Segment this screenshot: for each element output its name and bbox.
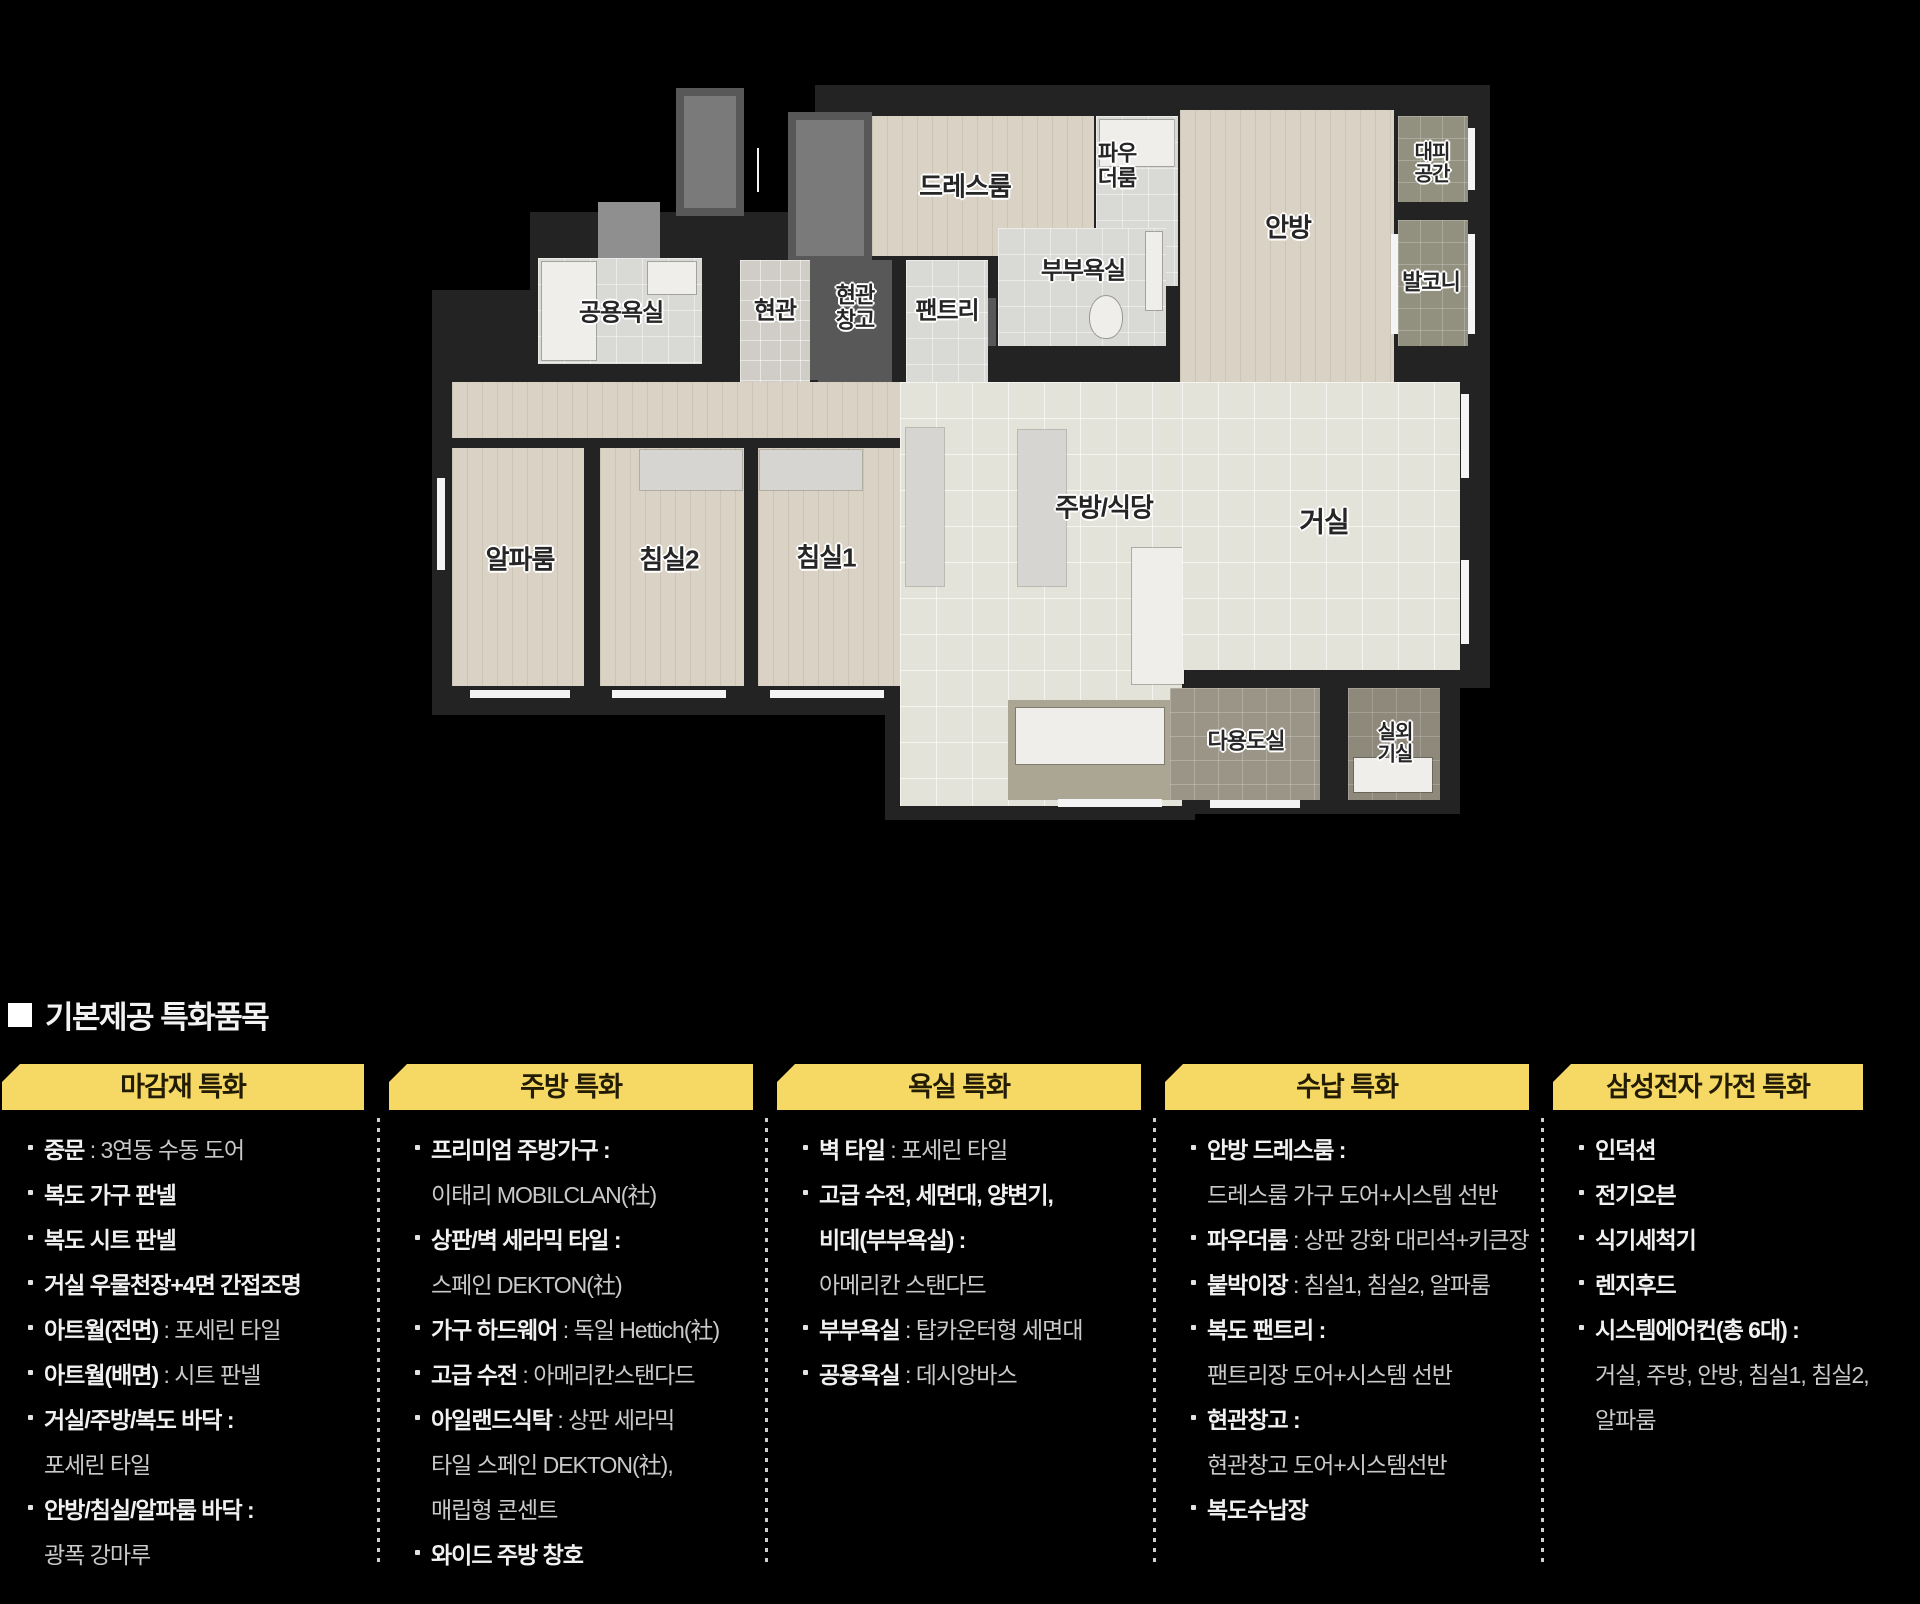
feature-label: 부부욕실 (819, 1311, 900, 1345)
feature-line-finishing-8: 안방/침실/알파룸 바닥 : (28, 1485, 254, 1530)
feature-line-bathroom-5: 공용욕실 : 데시앙바스 (803, 1350, 1017, 1395)
bullet-dot-icon (415, 1370, 420, 1375)
label-common-bath: 공용욕실 (579, 301, 663, 328)
feature-line-storage-0: 안방 드레스룸 : (1191, 1125, 1345, 1170)
feature-line-storage-7: 현관창고 도어+시스템선반 (1207, 1440, 1447, 1485)
kitchen-sink-counter (1016, 708, 1164, 764)
feature-label: 복도수납장 (1207, 1491, 1308, 1525)
feature-line-kitchen-4: 가구 하드웨어 : 독일 Hettich(社) (415, 1305, 719, 1350)
feature-line-kitchen-2: 상판/벽 세라믹 타일 : (415, 1215, 621, 1260)
feature-line-finishing-7: 포세린 타일 (44, 1440, 150, 1485)
feature-label: 비데(부부욕실) : (819, 1221, 965, 1255)
bullet-dot-icon (28, 1145, 33, 1150)
feature-label: 벽 타일 (819, 1131, 885, 1165)
label-balcony: 발코니 (1402, 271, 1460, 296)
feature-label: 아트월(전면) (44, 1311, 158, 1345)
bedroom1-closet (760, 450, 862, 490)
feature-value: 이태리 MOBILCLAN(社) (431, 1176, 656, 1210)
feature-line-kitchen-7: 타일 스페인 DEKTON(社), (431, 1440, 673, 1485)
feature-value: : 데시앙바스 (900, 1356, 1017, 1390)
bullet-dot-icon (1579, 1235, 1584, 1240)
feature-value: : 3연동 수동 도어 (84, 1131, 244, 1165)
column-divider (765, 1118, 768, 1566)
bullet-dot-icon (415, 1415, 420, 1420)
feature-label: 공용욕실 (819, 1356, 900, 1390)
core-shaft-inner (684, 96, 736, 208)
feature-line-storage-4: 복도 팬트리 : (1191, 1305, 1325, 1350)
label-kitchen-dining: 주방/식당 (1055, 493, 1153, 522)
feature-label: 인덕션 (1595, 1131, 1655, 1165)
master-bedroom-floor (1180, 110, 1394, 382)
bullet-dot-icon (1191, 1235, 1196, 1240)
feature-label: 고급 수전, 세면대, 양변기, (819, 1176, 1053, 1210)
feature-line-appliance-5: 거실, 주방, 안방, 침실1, 침실2, (1595, 1350, 1869, 1395)
feature-value: 팬트리장 도어+시스템 선반 (1207, 1356, 1452, 1390)
feature-value: 알파룸 (1595, 1401, 1655, 1435)
feature-label: 거실/주방/복도 바닥 : (44, 1401, 234, 1435)
bullet-dot-icon (803, 1370, 808, 1375)
window (770, 690, 884, 698)
feature-line-storage-2: 파우더룸 : 상판 강화 대리석+키큰장 (1191, 1215, 1529, 1260)
label-master-bath: 부부욕실 (1041, 259, 1125, 286)
column-header-storage: 수납 특화 (1165, 1064, 1529, 1110)
column-divider (377, 1118, 380, 1566)
bullet-dot-icon (1191, 1505, 1196, 1510)
bullet-dot-icon (28, 1505, 33, 1510)
feature-line-appliance-6: 알파룸 (1595, 1395, 1655, 1440)
feature-value: : 상판 세라믹 (552, 1401, 674, 1435)
feature-value: : 독일 Hettich(社) (557, 1311, 719, 1345)
title-square-bullet (8, 1003, 32, 1027)
bullet-dot-icon (415, 1550, 420, 1555)
feature-label: 전기오븐 (1595, 1176, 1676, 1210)
feature-label: 현관창고 : (1207, 1401, 1300, 1435)
kitchen-tall-unit (906, 428, 944, 586)
column-header-finishing: 마감재 특화 (2, 1064, 364, 1110)
master-bath-counter (1146, 232, 1162, 310)
feature-value: : 침실1, 침실2, 알파룸 (1288, 1266, 1490, 1300)
feature-line-appliance-2: 식기세척기 (1579, 1215, 1696, 1260)
label-alpha-room: 알파룸 (486, 545, 555, 574)
window (1468, 128, 1475, 190)
feature-line-finishing-9: 광폭 강마루 (44, 1530, 150, 1575)
entry-vestibule (598, 202, 660, 258)
window (1461, 560, 1469, 644)
feature-value: 스페인 DEKTON(社) (431, 1266, 622, 1300)
feature-label: 와이드 주방 창호 (431, 1536, 583, 1570)
feature-value: 매립형 콘센트 (431, 1491, 557, 1525)
label-bedroom1: 침실1 (796, 543, 855, 572)
bullet-dot-icon (28, 1190, 33, 1195)
feature-value: : 시트 판넬 (158, 1356, 260, 1390)
feature-label: 안방 드레스룸 : (1207, 1131, 1345, 1165)
label-pantry: 팬트리 (915, 299, 978, 326)
feature-line-finishing-6: 거실/주방/복도 바닥 : (28, 1395, 234, 1440)
window (1391, 234, 1398, 334)
toilet (1090, 296, 1122, 338)
feature-line-kitchen-8: 매립형 콘센트 (431, 1485, 557, 1530)
bullet-dot-icon (415, 1235, 420, 1240)
feature-line-storage-6: 현관창고 : (1191, 1395, 1300, 1440)
window (470, 690, 570, 698)
label-utility-room: 다용도실 (1208, 730, 1285, 755)
bullet-dot-icon (1191, 1280, 1196, 1285)
window (1468, 234, 1475, 334)
bullet-dot-icon (1191, 1145, 1196, 1150)
kitchen-island (1132, 548, 1184, 684)
feature-line-finishing-5: 아트월(배면) : 시트 판넬 (28, 1350, 260, 1395)
feature-line-bathroom-1: 고급 수전, 세면대, 양변기, (803, 1170, 1053, 1215)
feature-value: 아메리칸 스탠다드 (819, 1266, 986, 1300)
label-powder-room: 파우 더룸 (1098, 141, 1136, 190)
feature-line-finishing-3: 거실 우물천장+4면 간접조명 (28, 1260, 301, 1305)
feature-line-kitchen-6: 아일랜드식탁 : 상판 세라믹 (415, 1395, 674, 1440)
bullet-dot-icon (1579, 1325, 1584, 1330)
feature-label: 가구 하드웨어 (431, 1311, 557, 1345)
feature-line-kitchen-0: 프리미엄 주방가구 : (415, 1125, 610, 1170)
label-entrance: 현관 (754, 299, 796, 326)
feature-value: 거실, 주방, 안방, 침실1, 침실2, (1595, 1356, 1869, 1390)
feature-label: 아일랜드식탁 (431, 1401, 552, 1435)
feature-line-storage-1: 드레스룸 가구 도어+시스템 선반 (1207, 1170, 1498, 1215)
feature-label: 식기세척기 (1595, 1221, 1696, 1255)
label-master-bedroom: 안방 (1265, 213, 1311, 242)
feature-label: 파우더룸 (1207, 1221, 1288, 1255)
window (437, 478, 445, 570)
feature-label: 복도 팬트리 : (1207, 1311, 1325, 1345)
feature-value: 광폭 강마루 (44, 1536, 150, 1570)
window (1461, 394, 1469, 478)
feature-line-bathroom-3: 아메리칸 스탠다드 (819, 1260, 986, 1305)
bullet-dot-icon (415, 1145, 420, 1150)
bullet-dot-icon (1191, 1325, 1196, 1330)
bullet-dot-icon (1191, 1415, 1196, 1420)
feature-value: 타일 스페인 DEKTON(社), (431, 1446, 673, 1480)
bullet-dot-icon (28, 1415, 33, 1420)
feature-label: 안방/침실/알파룸 바닥 : (44, 1491, 254, 1525)
bullet-dot-icon (415, 1325, 420, 1330)
feature-line-appliance-3: 렌지후드 (1579, 1260, 1676, 1305)
label-dressroom: 드레스룸 (919, 172, 1011, 201)
feature-line-storage-3: 붙박이장 : 침실1, 침실2, 알파룸 (1191, 1260, 1490, 1305)
bullet-dot-icon (803, 1190, 808, 1195)
label-living-room: 거실 (1299, 506, 1349, 537)
column-header-bathroom: 욕실 특화 (777, 1064, 1141, 1110)
feature-line-storage-8: 복도수납장 (1191, 1485, 1308, 1530)
feature-label: 아트월(배면) (44, 1356, 158, 1390)
feature-value: : 아메리칸스탠다드 (517, 1356, 694, 1390)
feature-line-storage-5: 팬트리장 도어+시스템 선반 (1207, 1350, 1452, 1395)
bullet-dot-icon (28, 1280, 33, 1285)
column-header-kitchen: 주방 특화 (389, 1064, 753, 1110)
feature-line-finishing-1: 복도 가구 판넬 (28, 1170, 176, 1215)
feature-line-kitchen-5: 고급 수전 : 아메리칸스탠다드 (415, 1350, 694, 1395)
feature-line-appliance-0: 인덕션 (1579, 1125, 1655, 1170)
feature-line-appliance-1: 전기오븐 (1579, 1170, 1676, 1215)
feature-label: 프리미엄 주방가구 : (431, 1131, 610, 1165)
window (1058, 799, 1162, 807)
entry-arrow-line (757, 148, 759, 192)
feature-value: : 탑카운터형 세면대 (900, 1311, 1083, 1345)
feature-label: 거실 우물천장+4면 간접조명 (44, 1266, 301, 1300)
feature-label: 복도 가구 판넬 (44, 1176, 176, 1210)
section-title: 기본제공 특화품목 (45, 992, 268, 1037)
window (612, 690, 726, 698)
feature-label: 중문 (44, 1131, 84, 1165)
feature-line-bathroom-0: 벽 타일 : 포세린 타일 (803, 1125, 1007, 1170)
feature-line-kitchen-3: 스페인 DEKTON(社) (431, 1260, 622, 1305)
label-bedroom2: 침실2 (639, 545, 698, 574)
label-outdoor-unit-room: 실외 기실 (1378, 722, 1413, 767)
feature-line-finishing-2: 복도 시트 판넬 (28, 1215, 176, 1260)
feature-label: 렌지후드 (1595, 1266, 1676, 1300)
feature-label: 고급 수전 (431, 1356, 517, 1390)
column-divider (1153, 1118, 1156, 1566)
section-title-row: 기본제공 특화품목 (8, 992, 268, 1037)
bullet-dot-icon (803, 1325, 808, 1330)
feature-label: 시스템에어컨(총 6대) : (1595, 1311, 1799, 1345)
window (1210, 800, 1300, 808)
feature-line-kitchen-9: 와이드 주방 창호 (415, 1530, 583, 1575)
feature-line-appliance-4: 시스템에어컨(총 6대) : (1579, 1305, 1799, 1350)
feature-label: 붙박이장 (1207, 1266, 1288, 1300)
bullet-dot-icon (28, 1235, 33, 1240)
feature-value: : 포세린 타일 (158, 1311, 280, 1345)
label-entrance-storage: 현관 창고 (836, 283, 874, 332)
column-divider (1541, 1118, 1544, 1566)
bullet-dot-icon (28, 1370, 33, 1375)
feature-value: 드레스룸 가구 도어+시스템 선반 (1207, 1176, 1498, 1210)
column-header-appliance: 삼성전자 가전 특화 (1553, 1064, 1863, 1110)
floor-plan-poster: 드레스룸파우 더룸안방대피 공간발코니공용욕실현관현관 창고팬트리부부욕실알파룸… (0, 0, 1920, 1604)
feature-value: : 상판 강화 대리석+키큰장 (1288, 1221, 1529, 1255)
bullet-dot-icon (28, 1325, 33, 1330)
bullet-dot-icon (803, 1145, 808, 1150)
feature-value: : 포세린 타일 (885, 1131, 1007, 1165)
master-bath-floor (998, 228, 1166, 346)
feature-value: 포세린 타일 (44, 1446, 150, 1480)
wash-basin (648, 262, 696, 294)
bedroom2-closet (640, 450, 742, 490)
dressroom-closet-inner (796, 120, 864, 256)
label-shelter: 대피 공간 (1415, 142, 1450, 187)
feature-label: 복도 시트 판넬 (44, 1221, 176, 1255)
bullet-dot-icon (1579, 1190, 1584, 1195)
feature-label: 상판/벽 세라믹 타일 : (431, 1221, 621, 1255)
feature-line-finishing-4: 아트월(전면) : 포세린 타일 (28, 1305, 281, 1350)
feature-line-bathroom-2: 비데(부부욕실) : (819, 1215, 965, 1260)
feature-line-finishing-0: 중문 : 3연동 수동 도어 (28, 1125, 244, 1170)
bullet-dot-icon (1579, 1145, 1584, 1150)
feature-value: 현관창고 도어+시스템선반 (1207, 1446, 1447, 1480)
feature-line-bathroom-4: 부부욕실 : 탑카운터형 세면대 (803, 1305, 1082, 1350)
bullet-dot-icon (1579, 1280, 1584, 1285)
feature-line-kitchen-1: 이태리 MOBILCLAN(社) (431, 1170, 656, 1215)
